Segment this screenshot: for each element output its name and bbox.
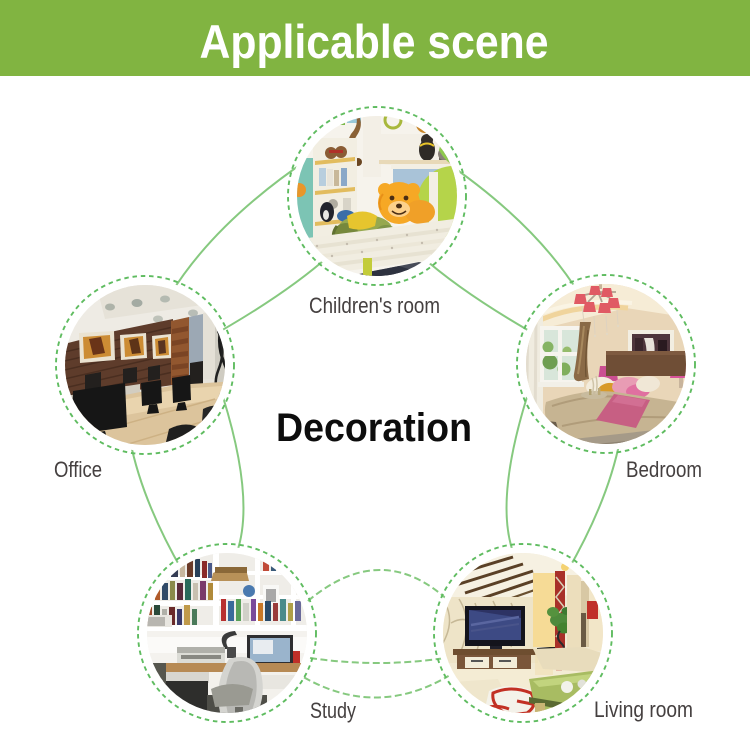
svg-text:Decoration: Decoration: [276, 406, 472, 450]
svg-text:Office: Office: [54, 457, 102, 482]
svg-text:Living room: Living room: [594, 697, 693, 722]
svg-text:Bedroom: Bedroom: [626, 457, 702, 482]
svg-text:Study: Study: [310, 698, 356, 723]
svg-text:Children's room: Children's room: [309, 293, 440, 318]
svg-text:Applicable scene: Applicable scene: [200, 15, 549, 68]
